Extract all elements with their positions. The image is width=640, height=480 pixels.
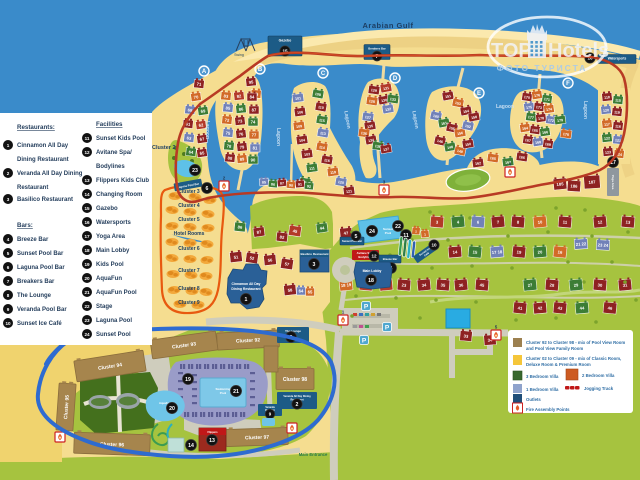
svg-text:81: 81: [253, 146, 258, 151]
svg-text:12: 12: [84, 150, 90, 155]
svg-text:AquaFun: AquaFun: [96, 276, 122, 282]
svg-text:17: 17: [84, 234, 90, 239]
svg-text:Cluster 4: Cluster 4: [178, 203, 200, 209]
svg-text:Flippers: Flippers: [207, 430, 218, 434]
svg-text:Cluster 2: Cluster 2: [152, 145, 176, 151]
svg-text:178: 178: [538, 116, 544, 121]
svg-text:The Lounge: The Lounge: [17, 293, 52, 299]
svg-text:Breeze Bar: Breeze Bar: [17, 237, 49, 243]
svg-text:1: 1: [245, 297, 248, 303]
svg-text:Avitane Spa/: Avitane Spa/: [96, 150, 132, 156]
svg-text:173: 173: [536, 105, 542, 110]
svg-text:1: 1: [7, 143, 10, 148]
svg-text:90: 90: [251, 158, 256, 163]
svg-text:103: 103: [304, 152, 310, 157]
svg-text:Sunset Pool: Sunset Pool: [96, 332, 131, 338]
svg-text:13: 13: [209, 438, 215, 444]
svg-text:187: 187: [588, 179, 596, 185]
svg-text:111: 111: [309, 166, 315, 171]
svg-text:128: 128: [369, 99, 375, 104]
svg-text:Sunset Pool Bar: Sunset Pool Bar: [17, 251, 64, 257]
svg-text:Cluster 97: Cluster 97: [245, 435, 270, 442]
svg-text:64: 64: [299, 289, 304, 294]
svg-text:16: 16: [84, 220, 90, 225]
svg-text:Veranda Pool Bar: Veranda Pool Bar: [17, 307, 67, 313]
svg-text:20: 20: [169, 406, 175, 412]
svg-text:Lagoon: Lagoon: [275, 128, 281, 146]
svg-text:121: 121: [346, 189, 352, 194]
svg-text:122: 122: [604, 136, 610, 141]
svg-text:179: 179: [557, 118, 563, 123]
svg-text:Yoga Area: Yoga Area: [611, 175, 615, 190]
svg-text:Breakers Bar: Breakers Bar: [17, 279, 55, 285]
svg-text:24: 24: [369, 229, 375, 235]
svg-text:19: 19: [185, 377, 191, 383]
svg-text:90: 90: [289, 183, 293, 187]
svg-text:84: 84: [250, 95, 255, 100]
svg-text:167: 167: [525, 138, 531, 143]
svg-text:168: 168: [535, 140, 541, 145]
svg-text:7: 7: [7, 279, 10, 284]
svg-text:Flippers Kids Club: Flippers Kids Club: [96, 178, 149, 184]
svg-text:21: 21: [84, 290, 90, 295]
svg-text:15: 15: [84, 206, 90, 211]
svg-text:C: C: [321, 71, 326, 77]
svg-text:Gazebo: Gazebo: [279, 38, 292, 42]
svg-text:Gazebo: Gazebo: [96, 206, 118, 212]
svg-text:118: 118: [604, 95, 610, 100]
svg-text:117: 117: [604, 122, 610, 127]
svg-text:Restaurants:: Restaurants:: [17, 124, 55, 131]
svg-text:178: 178: [563, 132, 569, 137]
svg-text:Sunset Kids Pool: Sunset Kids Pool: [96, 136, 146, 142]
svg-text:Yoga Area: Yoga Area: [96, 234, 126, 240]
svg-text:18: 18: [368, 278, 374, 284]
svg-text:18: 18: [84, 248, 90, 253]
svg-text:129: 129: [371, 88, 377, 93]
svg-text:2 Bedroom Villa: 2 Bedroom Villa: [582, 373, 615, 378]
svg-text:P: P: [385, 325, 390, 332]
svg-text:Lagoon: Lagoon: [496, 104, 514, 110]
svg-text:Lagoon: Lagoon: [204, 121, 210, 139]
svg-text:Breeze Bar: Breeze Bar: [383, 257, 399, 261]
svg-text:22: 22: [84, 304, 90, 309]
svg-text:Restaurant: Restaurant: [17, 185, 48, 191]
svg-text:AquaFun Pool: AquaFun Pool: [96, 290, 137, 296]
svg-text:Outlets: Outlets: [526, 397, 541, 402]
svg-text:Watersports: Watersports: [608, 56, 627, 60]
svg-text:77: 77: [252, 133, 257, 138]
svg-text:Breakers Bar: Breakers Bar: [368, 46, 386, 50]
svg-text:127: 127: [365, 115, 371, 120]
svg-text:119: 119: [330, 170, 336, 175]
svg-text:22: 22: [395, 224, 401, 230]
svg-text:Main Lobby: Main Lobby: [363, 269, 382, 273]
svg-text:Cluster 6: Cluster 6: [178, 246, 200, 252]
svg-text:Hotel Rooms: Hotel Rooms: [174, 231, 205, 237]
svg-text:Stage: Stage: [96, 304, 113, 310]
svg-text:Cluster 8: Cluster 8: [178, 286, 200, 292]
svg-text:3: 3: [7, 197, 10, 202]
svg-text:186: 186: [570, 183, 578, 189]
svg-text:1 Bedroom Villa: 1 Bedroom Villa: [526, 387, 559, 392]
svg-text:176: 176: [534, 93, 540, 98]
svg-text:Cluster 7: Cluster 7: [178, 268, 200, 274]
svg-text:106: 106: [297, 110, 303, 115]
svg-text:Cluster 5: Cluster 5: [178, 217, 200, 223]
svg-text:169: 169: [545, 142, 551, 147]
svg-text:Hotels: Hotels: [548, 40, 609, 62]
svg-text:170: 170: [524, 95, 530, 100]
svg-text:D: D: [393, 76, 398, 82]
svg-text:175: 175: [526, 105, 532, 110]
svg-text:177: 177: [528, 115, 534, 120]
svg-text:5: 5: [355, 234, 358, 240]
svg-text:Dining Restaurant: Dining Restaurant: [231, 287, 261, 291]
svg-text:2: 2: [7, 171, 10, 176]
svg-text:17 18: 17 18: [492, 249, 504, 255]
svg-text:Cluster 9: Cluster 9: [178, 300, 200, 306]
svg-text:165: 165: [532, 128, 538, 133]
svg-text:P: P: [364, 304, 369, 311]
svg-text:23 24: 23 24: [598, 242, 609, 248]
svg-text:92: 92: [307, 184, 311, 188]
svg-text:10: 10: [5, 321, 11, 326]
svg-text:Pool: Pool: [385, 231, 392, 235]
svg-text:86: 86: [271, 182, 275, 186]
svg-text:8: 8: [7, 293, 10, 298]
svg-text:Veranda All Day Dining: Veranda All Day Dining: [17, 171, 83, 177]
svg-text:116: 116: [615, 124, 621, 129]
svg-text:87: 87: [252, 108, 257, 113]
svg-text:85: 85: [262, 180, 266, 184]
svg-text:Basilico Restaurant: Basilico Restaurant: [300, 252, 328, 256]
svg-text:Laguna Pool: Laguna Pool: [96, 318, 132, 324]
svg-text:Laguna Pool Bar: Laguna Pool Bar: [17, 265, 65, 271]
svg-text:Jogging Track: Jogging Track: [584, 386, 614, 391]
svg-text:Cluster 98: Cluster 98: [283, 377, 307, 383]
svg-text:23: 23: [192, 168, 198, 174]
svg-text:65: 65: [308, 290, 313, 295]
svg-text:TOP: TOP: [491, 40, 532, 62]
svg-text:13: 13: [84, 178, 90, 183]
svg-text:87: 87: [280, 181, 284, 185]
svg-text:21: 21: [233, 389, 239, 395]
svg-text:Dining Restaurant: Dining Restaurant: [17, 157, 69, 163]
svg-text:P: P: [362, 338, 367, 345]
svg-text:Deluxe Room & Premium Room: Deluxe Room & Premium Room: [526, 362, 591, 367]
svg-text:2: 2: [296, 402, 299, 408]
svg-text:Kids Pool: Kids Pool: [96, 262, 124, 268]
svg-text:ФОТО ТУРИСТА: ФОТО ТУРИСТА: [497, 63, 588, 73]
svg-text:4: 4: [7, 237, 10, 242]
svg-text:14: 14: [84, 192, 90, 197]
svg-text:3 Bedroom Villa: 3 Bedroom Villa: [526, 374, 559, 379]
svg-text:23: 23: [84, 318, 90, 323]
svg-text:6: 6: [206, 186, 209, 192]
svg-text:Cluster 92 to Cluster 98 - mix: Cluster 92 to Cluster 98 - mix of Pool V…: [526, 340, 625, 345]
svg-text:Watersports: Watersports: [96, 220, 131, 226]
svg-text:and Pool View Family Room: and Pool View Family Room: [526, 346, 583, 351]
svg-text:171: 171: [544, 97, 550, 102]
svg-text:A: A: [202, 69, 207, 75]
svg-text:174: 174: [546, 107, 552, 112]
svg-text:Facilities: Facilities: [96, 121, 123, 128]
svg-text:Basilico Restaurant: Basilico Restaurant: [17, 197, 73, 203]
svg-text:Lagoon: Lagoon: [582, 101, 588, 119]
svg-text:14: 14: [188, 443, 194, 449]
svg-text:19: 19: [84, 262, 90, 267]
svg-text:6: 6: [7, 265, 10, 270]
svg-text:Cluster 92: Cluster 92: [236, 337, 261, 344]
svg-text:74: 74: [251, 120, 256, 125]
svg-text:24: 24: [84, 332, 90, 337]
svg-text:Swing: Swing: [234, 53, 244, 57]
svg-text:12: 12: [371, 254, 377, 259]
svg-text:119: 119: [614, 110, 620, 115]
svg-text:20: 20: [84, 276, 90, 281]
svg-text:10: 10: [431, 243, 437, 248]
svg-text:172: 172: [548, 118, 554, 123]
svg-text:133: 133: [390, 97, 396, 102]
svg-text:Cinnamon All Day: Cinnamon All Day: [17, 143, 69, 149]
svg-text:104: 104: [299, 138, 305, 143]
svg-text:Cinnamon All Day: Cinnamon All Day: [232, 282, 261, 286]
svg-text:F: F: [566, 81, 570, 87]
svg-text:166: 166: [519, 155, 525, 160]
svg-text:Main Entrance: Main Entrance: [299, 452, 328, 457]
svg-text:Bars:: Bars:: [17, 222, 33, 229]
svg-text:Bodylines: Bodylines: [96, 164, 125, 170]
svg-text:Cluster 02 to Cluster 09 - mix: Cluster 02 to Cluster 09 - mix of Classi…: [526, 356, 621, 361]
svg-text:109: 109: [296, 124, 302, 129]
svg-text:165: 165: [490, 156, 496, 161]
svg-text:115: 115: [615, 98, 621, 103]
svg-text:Arabian Gulf: Arabian Gulf: [362, 21, 413, 30]
svg-text:21 22: 21 22: [576, 241, 587, 247]
svg-text:11: 11: [85, 136, 90, 141]
svg-text:164: 164: [522, 126, 528, 131]
svg-text:123: 123: [605, 150, 611, 155]
svg-text:3: 3: [313, 262, 316, 268]
svg-text:Changing Room: Changing Room: [96, 192, 142, 198]
svg-text:121: 121: [615, 138, 621, 143]
svg-text:B: B: [258, 67, 263, 73]
svg-text:Main Lobby: Main Lobby: [96, 248, 130, 254]
svg-text:9: 9: [7, 307, 10, 312]
svg-text:Pool: Pool: [220, 391, 227, 395]
svg-text:5: 5: [7, 251, 10, 256]
svg-text:101: 101: [295, 96, 301, 101]
svg-text:166: 166: [542, 130, 548, 135]
svg-text:Fire Assembly Points: Fire Assembly Points: [526, 407, 570, 412]
svg-text:E: E: [477, 91, 481, 97]
svg-text:Sunset Ice Café: Sunset Ice Café: [17, 321, 62, 327]
svg-text:120: 120: [603, 108, 609, 113]
svg-text:162: 162: [475, 161, 481, 166]
svg-text:91: 91: [298, 182, 302, 186]
